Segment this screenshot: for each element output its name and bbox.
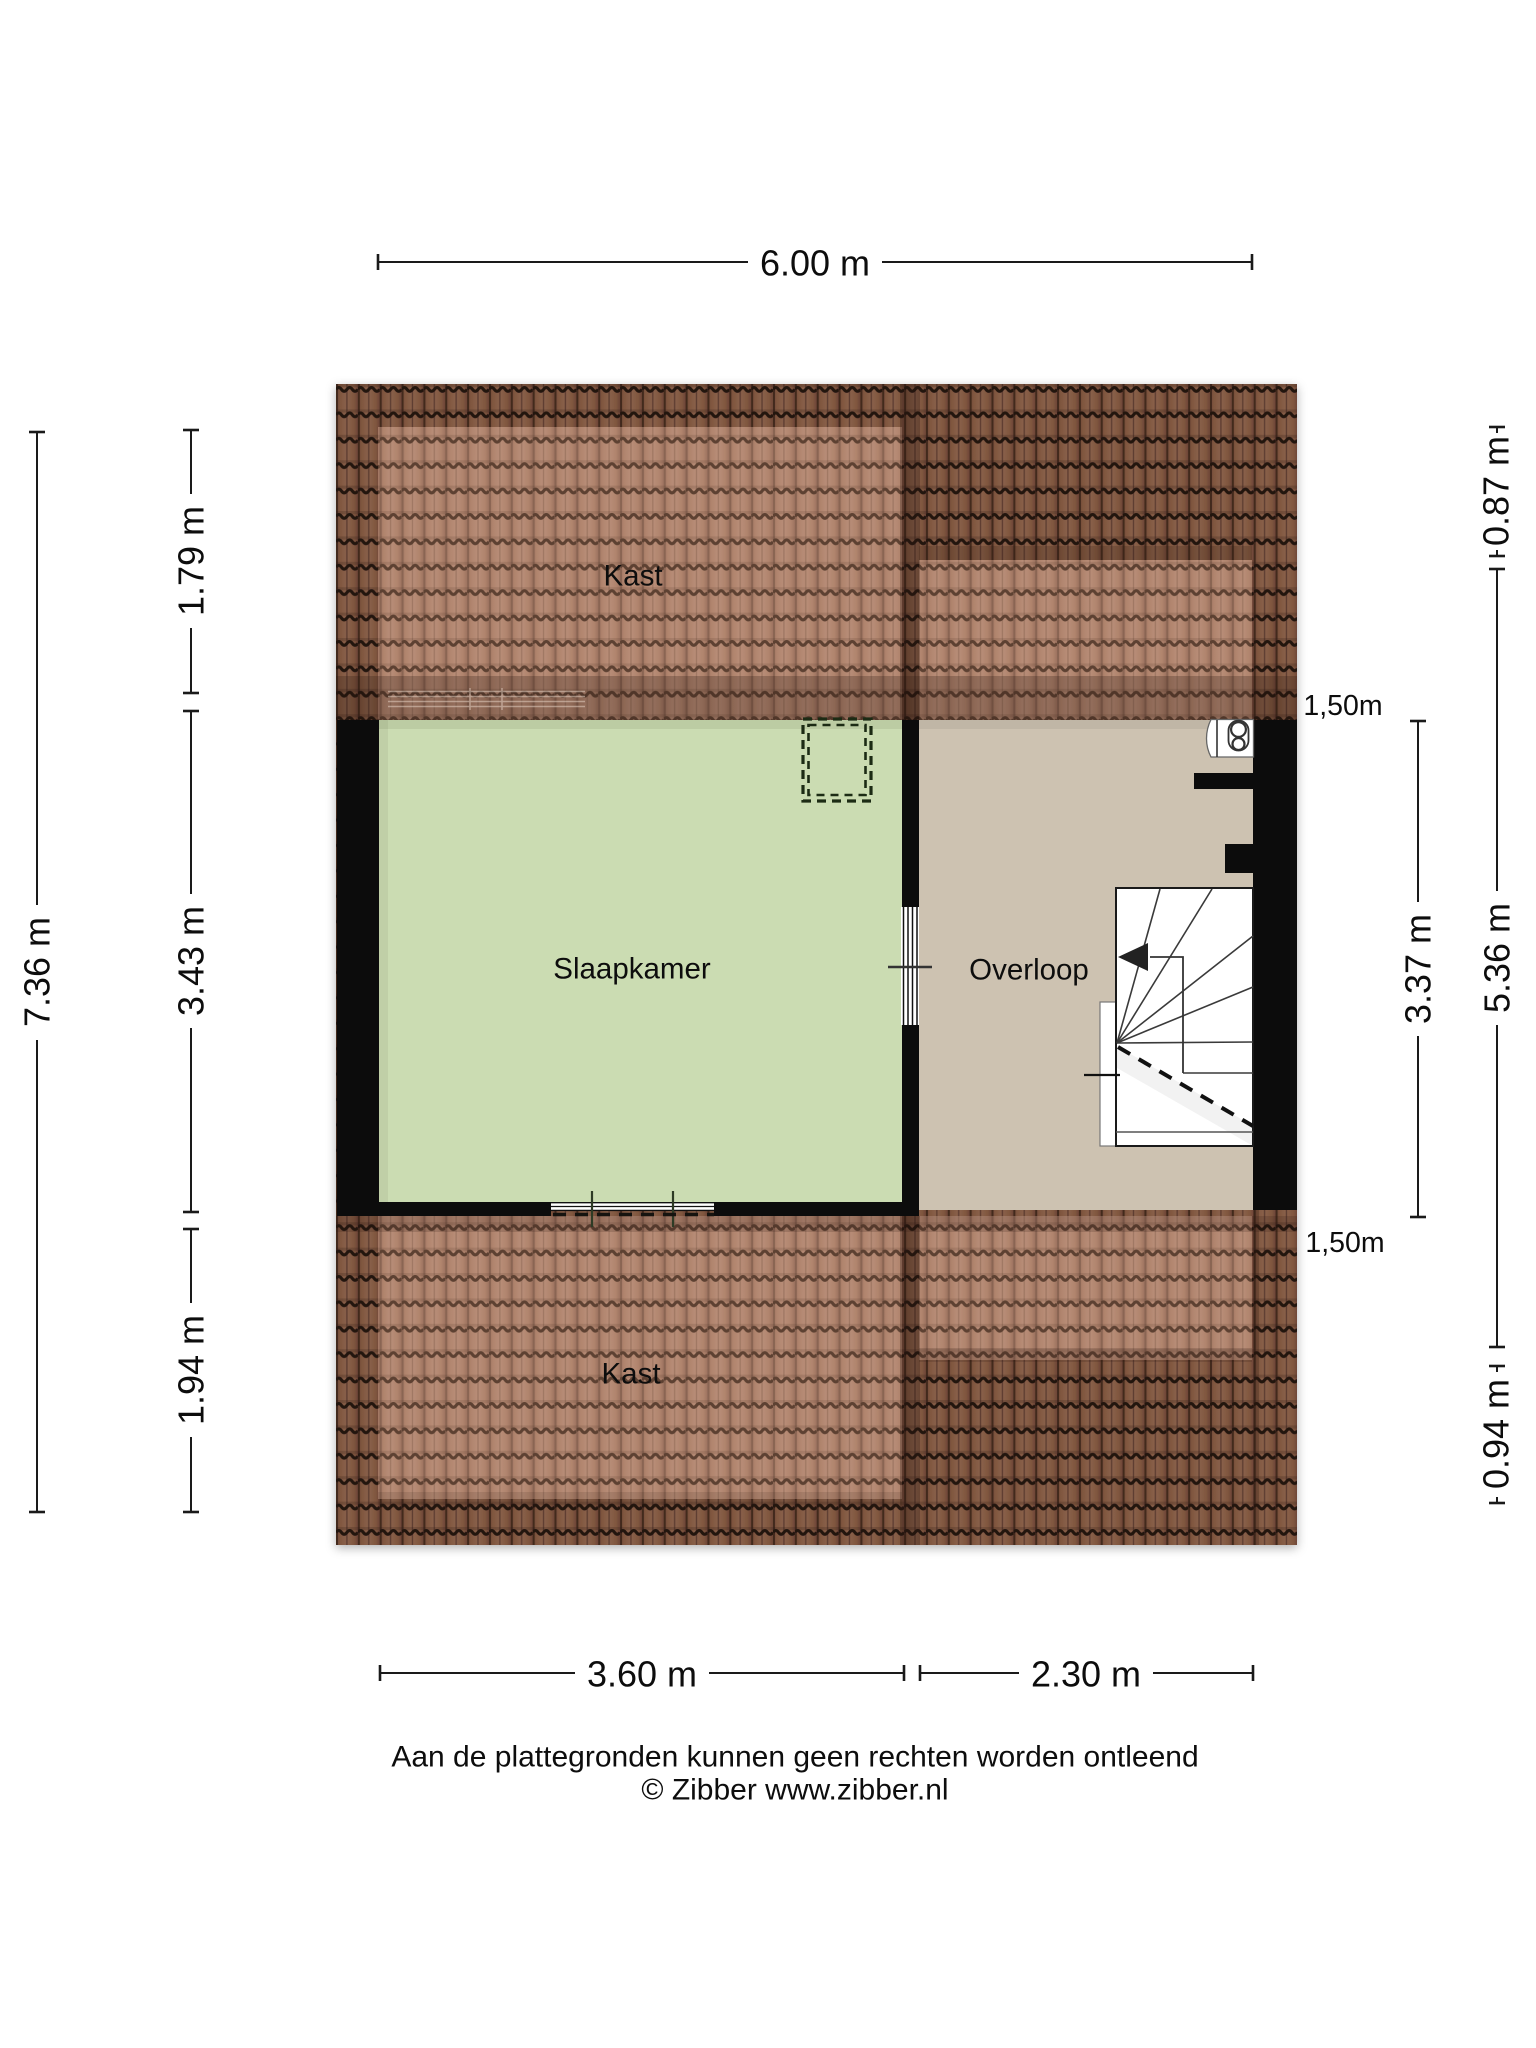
svg-text:2.30 m: 2.30 m: [1031, 1654, 1141, 1695]
svg-text:3.60 m: 3.60 m: [587, 1654, 697, 1695]
svg-text:6.00 m: 6.00 m: [760, 243, 870, 284]
svg-text:Slaapkamer: Slaapkamer: [553, 953, 711, 986]
svg-text:Kast: Kast: [603, 560, 662, 593]
svg-text:3.37 m: 3.37 m: [1398, 914, 1439, 1024]
svg-text:3.43 m: 3.43 m: [171, 906, 212, 1016]
svg-text:7.36 m: 7.36 m: [17, 917, 58, 1027]
svg-text:Overloop: Overloop: [969, 954, 1089, 987]
svg-text:© Zibber www.zibber.nl: © Zibber www.zibber.nl: [641, 1774, 948, 1807]
svg-text:Aan de plattegronden kunnen ge: Aan de plattegronden kunnen geen rechten…: [391, 1741, 1198, 1774]
svg-text:1.94 m: 1.94 m: [171, 1315, 212, 1425]
svg-text:5.36 m: 5.36 m: [1477, 903, 1518, 1013]
svg-text:1,50m: 1,50m: [1305, 1227, 1384, 1259]
svg-text:Kast: Kast: [601, 1358, 660, 1391]
svg-text:0.94 m: 0.94 m: [1476, 1379, 1517, 1489]
svg-text:0.87 m: 0.87 m: [1476, 436, 1517, 546]
svg-text:1.79 m: 1.79 m: [171, 506, 212, 616]
svg-text:1,50m: 1,50m: [1303, 690, 1382, 722]
